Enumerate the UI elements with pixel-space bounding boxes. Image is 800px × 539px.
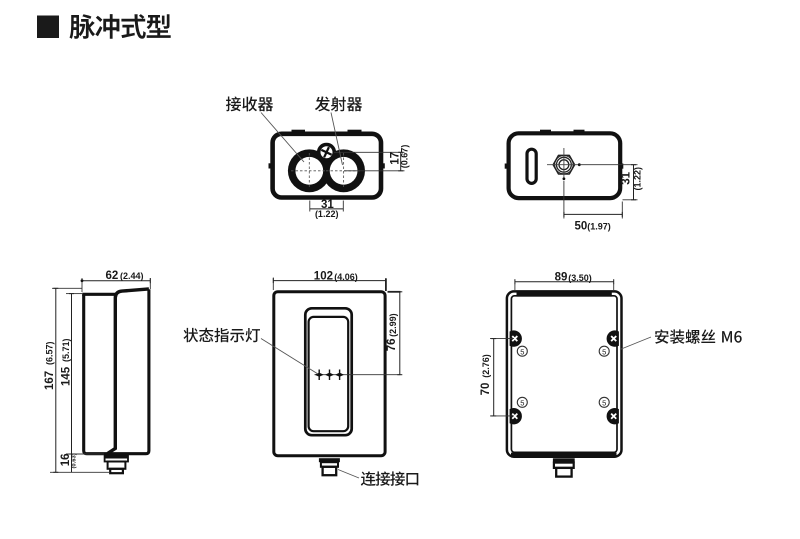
svg-text:31: 31	[620, 171, 632, 184]
svg-text:(1.22): (1.22)	[632, 167, 642, 191]
svg-text:(4.06): (4.06)	[334, 272, 358, 282]
svg-text:(1.22): (1.22)	[315, 209, 339, 219]
svg-text:(3.50): (3.50)	[568, 273, 592, 283]
svg-text:16: 16	[60, 454, 72, 467]
svg-text:76: 76	[386, 339, 398, 352]
svg-text:5: 5	[602, 347, 606, 356]
svg-text:89: 89	[555, 272, 568, 284]
svg-text:(1.97): (1.97)	[587, 222, 611, 232]
svg-text:(2.99): (2.99)	[388, 313, 398, 337]
svg-text:(2.44): (2.44)	[120, 271, 144, 281]
svg-text:102: 102	[314, 270, 333, 282]
svg-text:(6.57): (6.57)	[45, 341, 55, 365]
svg-text:70: 70	[480, 383, 492, 396]
svg-text:(0.67): (0.67)	[399, 145, 409, 169]
svg-text:62: 62	[106, 270, 119, 282]
svg-text:(2.76): (2.76)	[481, 354, 491, 378]
svg-text:5: 5	[520, 347, 524, 356]
svg-text:167: 167	[44, 371, 56, 390]
svg-text:5: 5	[520, 399, 524, 408]
svg-text:50: 50	[575, 220, 588, 232]
svg-text:(5.71): (5.71)	[61, 338, 71, 362]
svg-text:145: 145	[61, 366, 73, 386]
svg-text:(0.63): (0.63)	[72, 453, 78, 468]
svg-text:5: 5	[602, 399, 606, 408]
